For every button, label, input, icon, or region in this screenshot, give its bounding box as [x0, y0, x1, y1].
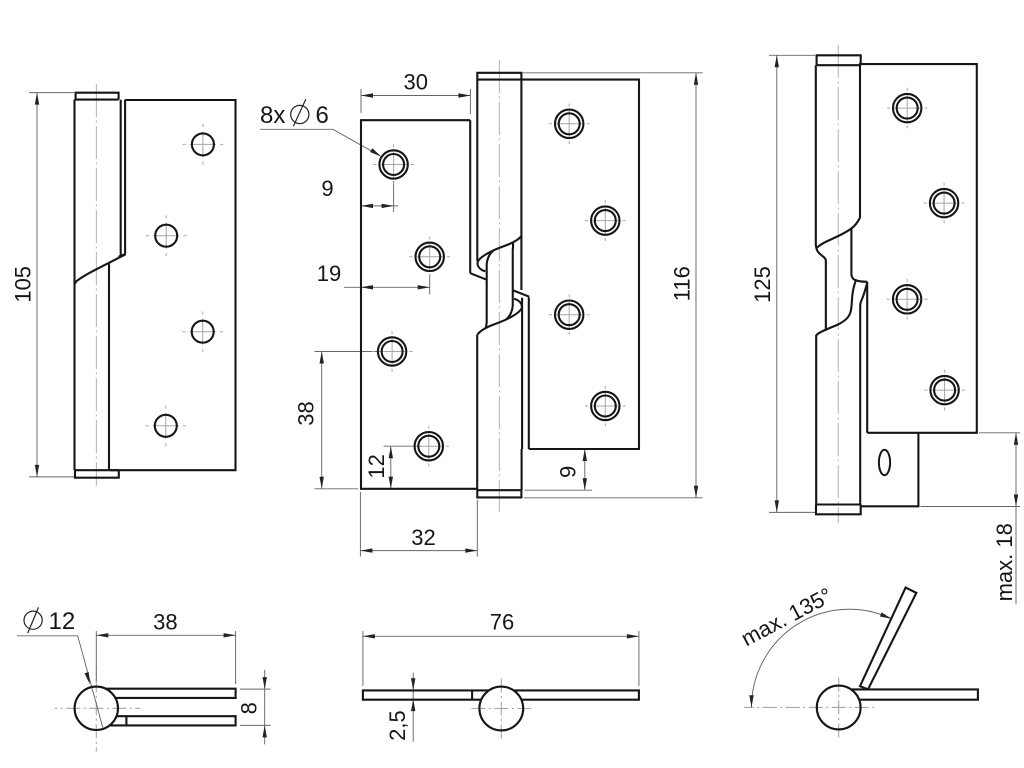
svg-text:76: 76	[490, 610, 514, 635]
svg-text:6: 6	[316, 102, 329, 129]
svg-text:105: 105	[11, 266, 36, 303]
svg-text:12: 12	[364, 454, 389, 478]
svg-text:max. 135°: max. 135°	[737, 583, 836, 652]
svg-text:12: 12	[49, 608, 76, 635]
svg-text:9: 9	[556, 466, 581, 478]
svg-text:116: 116	[670, 266, 695, 301]
svg-text:2,5: 2,5	[385, 710, 410, 741]
svg-text:32: 32	[411, 525, 435, 550]
svg-text:8x: 8x	[260, 102, 285, 129]
svg-text:125: 125	[750, 266, 775, 303]
svg-text:19: 19	[317, 261, 341, 286]
svg-text:max. 18: max. 18	[992, 523, 1017, 601]
svg-text:9: 9	[321, 176, 333, 201]
svg-text:38: 38	[294, 401, 319, 425]
svg-text:38: 38	[153, 610, 177, 635]
svg-text:30: 30	[403, 70, 427, 95]
svg-text:8: 8	[237, 702, 262, 714]
